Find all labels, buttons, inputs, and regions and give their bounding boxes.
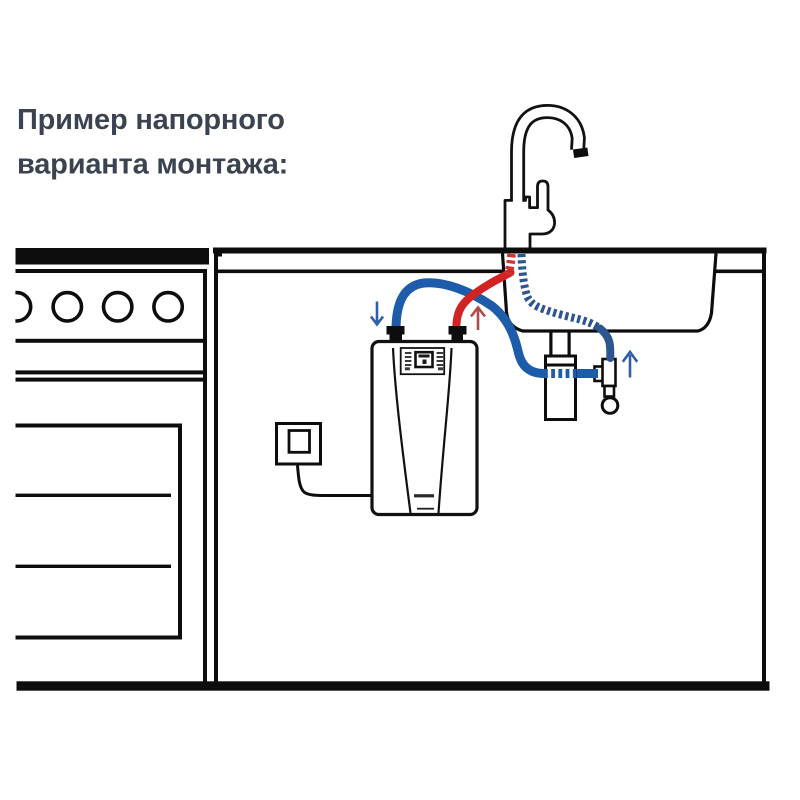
svg-text:Пример напорного: Пример напорного (17, 104, 285, 136)
svg-text:варианта монтажа:: варианта монтажа: (17, 149, 288, 181)
